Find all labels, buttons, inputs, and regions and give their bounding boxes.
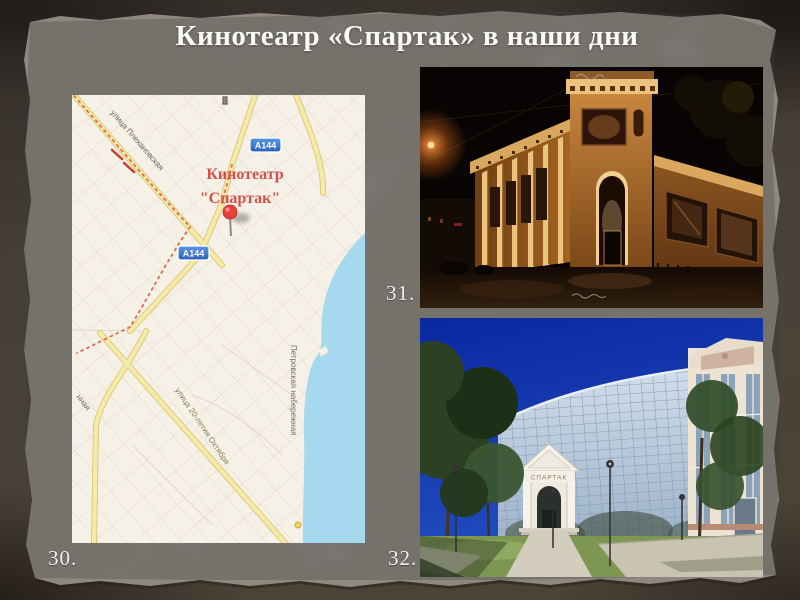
figure-number-night: 31. [386, 281, 415, 306]
road-badge-a144-bottom: А144 [178, 246, 209, 260]
figure-number-map: 30. [48, 546, 77, 571]
portico-sign: СПАРТАК [531, 475, 568, 482]
map-cinema-label-line2: "Спартак" [200, 190, 281, 207]
presentation-slide: Кинотеатр «Спартак» в наши дни [0, 0, 800, 600]
figure-number-day: 32. [388, 546, 417, 571]
map-image: улица Плехановская улица 20-летия Октябр… [72, 95, 365, 543]
map-cinema-label-line1: Кинотеатр [206, 166, 283, 183]
day-photo: СПАРТАК [420, 318, 763, 577]
svg-text:А144: А144 [255, 141, 277, 151]
grounds [420, 530, 763, 577]
night-photo [420, 67, 763, 308]
distant-building [420, 199, 478, 271]
map-poi-dot [295, 522, 301, 528]
road-badge-a144-top: А144 [250, 138, 281, 152]
slide-title: Кинотеатр «Спартак» в наши дни [0, 20, 800, 53]
svg-text:А144: А144 [183, 249, 205, 259]
street-label-petrovskaya: Петровская набережная [289, 345, 298, 436]
map-poi-icon [222, 97, 228, 104]
